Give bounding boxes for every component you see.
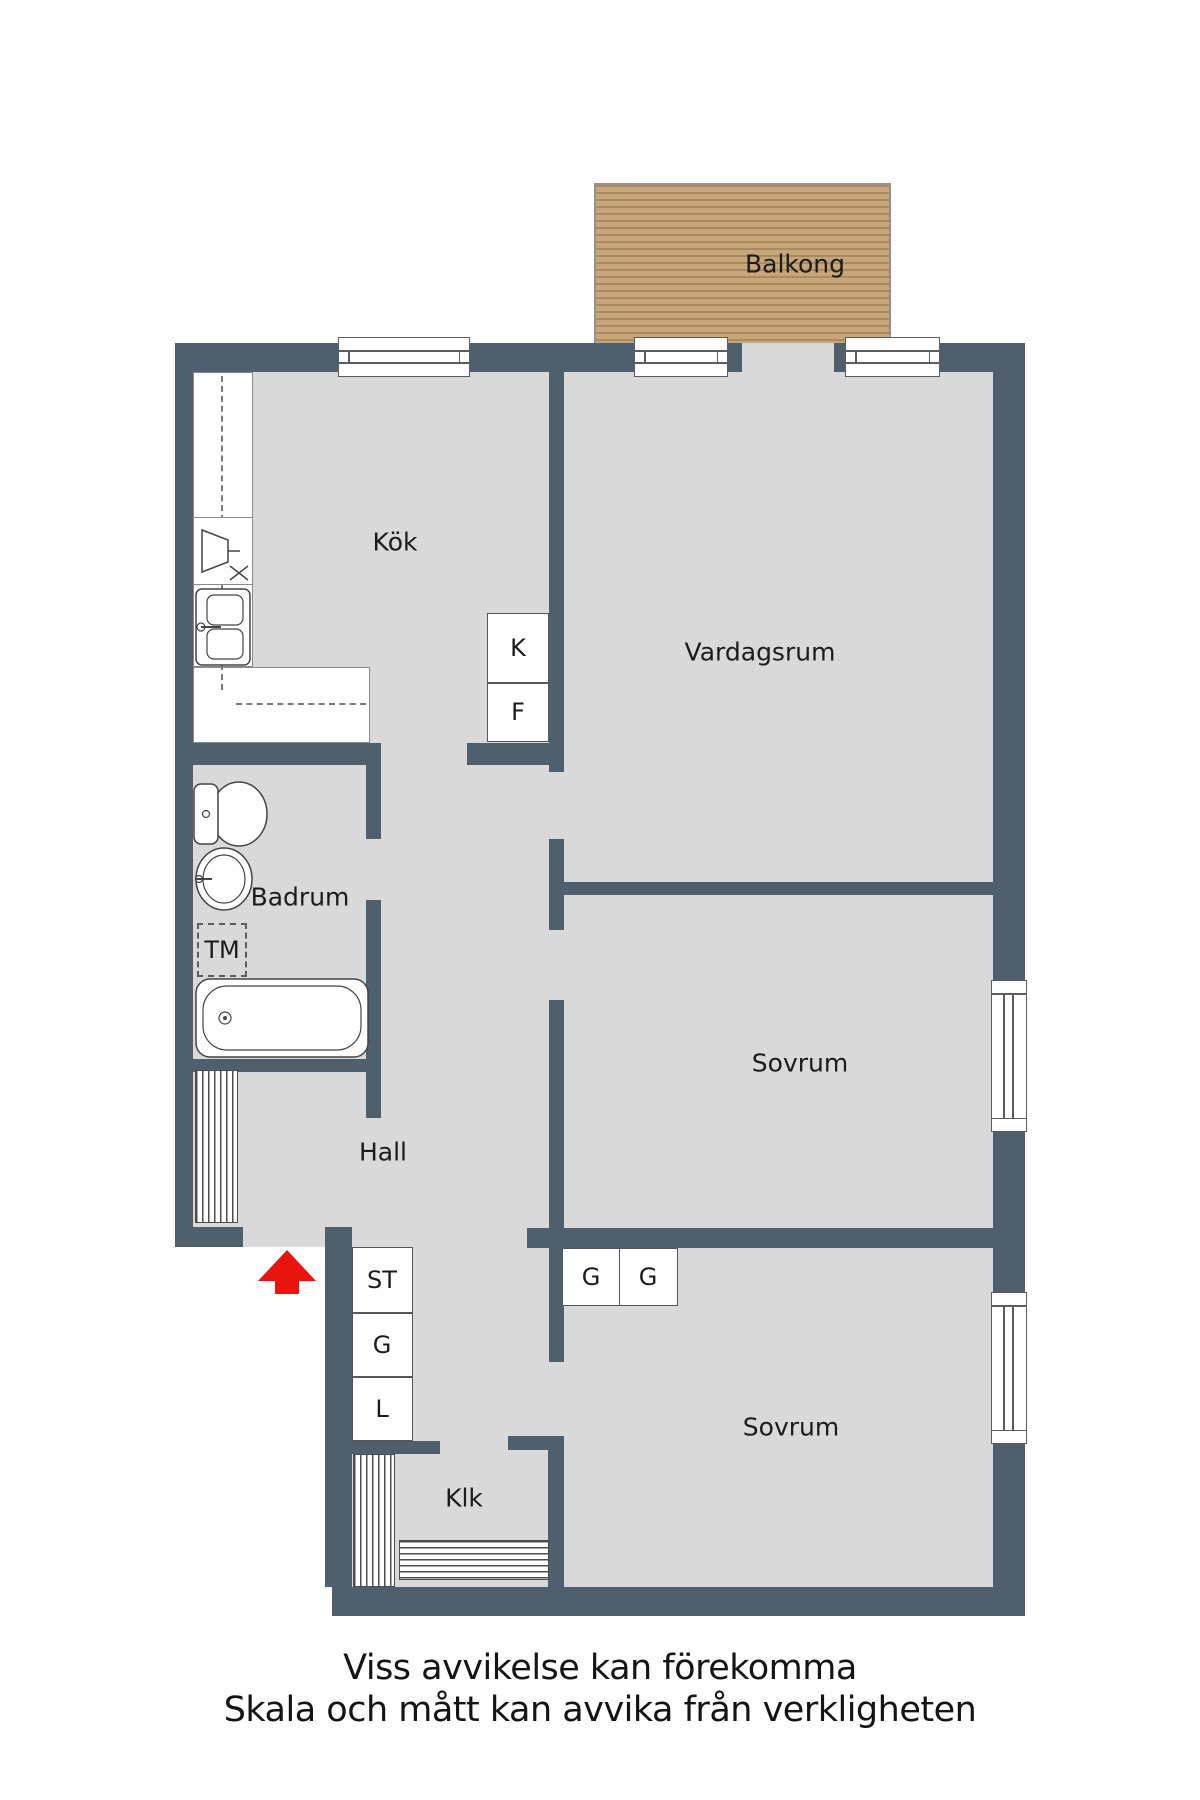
wall-pier-right xyxy=(834,343,845,372)
wall-vardagsrum-sovrum xyxy=(558,882,995,895)
stove-icon xyxy=(193,517,253,585)
window-sovrum-2 xyxy=(991,1292,1027,1444)
wall-klk-right xyxy=(548,1450,564,1587)
room-label-kok: Kök xyxy=(373,530,418,555)
room-label-klk: Klk xyxy=(445,1486,483,1511)
room-label-balkong: Balkong xyxy=(745,252,845,277)
fixture-label-g-sovrum-1: G xyxy=(582,1265,601,1289)
wall-hall-bottom xyxy=(175,1227,243,1247)
wall-kok-bottom-left xyxy=(193,743,381,765)
balcony-door-opening xyxy=(742,343,834,375)
wall-sovrum-divider xyxy=(527,1228,995,1248)
floorplan-canvas: Balkong xyxy=(0,0,1200,1800)
klk-wardrobe-hatch-left xyxy=(353,1454,395,1587)
window-frame-tick xyxy=(459,350,461,362)
wall-kok-bottom-right xyxy=(467,743,564,765)
room-label-sovrum-1: Sovrum xyxy=(752,1051,848,1076)
wall-klk-top xyxy=(325,1441,440,1454)
window-frame-tick xyxy=(992,1305,1026,1307)
window-balkong-right xyxy=(845,337,940,377)
window-frame-tick xyxy=(992,993,1026,995)
wall-top-left xyxy=(175,343,338,372)
window-kok xyxy=(338,337,470,377)
window-frame-line xyxy=(1003,1305,1005,1431)
fixture-label-g-hall: G xyxy=(373,1333,392,1357)
wall-klk-door-stub xyxy=(508,1436,564,1450)
toilet-icon xyxy=(193,778,269,850)
wall-left xyxy=(175,343,193,1247)
window-frame-line xyxy=(339,350,469,352)
counter-dashed-line-h xyxy=(236,703,366,705)
window-balkong-left xyxy=(634,337,728,377)
window-frame-tick xyxy=(348,350,350,362)
window-frame-tick xyxy=(717,350,719,362)
wall-pier-left xyxy=(728,343,742,372)
window-frame-line xyxy=(635,362,727,364)
wall-corridor-b xyxy=(549,1000,564,1248)
window-frame-tick xyxy=(644,350,646,362)
wall-badrum-right-upper xyxy=(366,765,381,839)
disclaimer-line-1: Viss avvikelse kan förekomma xyxy=(0,1648,1200,1688)
fixture-label-l: L xyxy=(375,1397,388,1421)
floor-main xyxy=(193,372,995,1247)
wall-badrum-bottom-stub xyxy=(366,1072,381,1118)
window-sovrum-1 xyxy=(991,980,1027,1132)
room-label-sovrum-2: Sovrum xyxy=(743,1415,839,1440)
window-frame-tick xyxy=(855,350,857,362)
wall-closet-left xyxy=(325,1227,352,1587)
window-frame-line xyxy=(1012,1305,1014,1431)
kitchen-sink-icon xyxy=(195,588,251,666)
fixture-label-frys: F xyxy=(511,700,525,724)
kitchen-counter-l xyxy=(193,667,370,743)
hall-wardrobe-hatch xyxy=(195,1070,238,1223)
window-frame-line xyxy=(846,362,939,364)
wall-top-mid xyxy=(470,343,634,372)
wall-kok-vardagsrum xyxy=(549,372,564,772)
room-label-hall: Hall xyxy=(359,1140,407,1165)
bathroom-sink-icon xyxy=(192,846,254,912)
window-frame-line xyxy=(339,362,469,364)
window-frame-line xyxy=(846,350,939,352)
wall-bottom xyxy=(332,1587,1025,1616)
bathtub-icon xyxy=(195,978,369,1058)
fixture-label-tm: TM xyxy=(204,938,239,962)
fixture-label-kyl: K xyxy=(510,636,526,660)
disclaimer-line-2: Skala och mått kan avvika från verklighe… xyxy=(0,1690,1200,1730)
fixture-label-g-sovrum-2: G xyxy=(639,1265,658,1289)
room-label-vardagsrum: Vardagsrum xyxy=(685,640,836,665)
window-frame-line xyxy=(1012,993,1014,1119)
window-frame-tick xyxy=(992,1118,1026,1120)
room-label-badrum: Badrum xyxy=(251,885,350,910)
window-frame-line xyxy=(635,350,727,352)
window-frame-tick xyxy=(992,1430,1026,1432)
window-frame-tick xyxy=(929,350,931,362)
klk-wardrobe-hatch-bottom xyxy=(399,1540,549,1580)
fixture-label-st: ST xyxy=(367,1268,397,1292)
window-frame-line xyxy=(1003,993,1005,1119)
entrance-arrow-icon xyxy=(258,1250,316,1294)
balcony-area xyxy=(594,183,891,345)
